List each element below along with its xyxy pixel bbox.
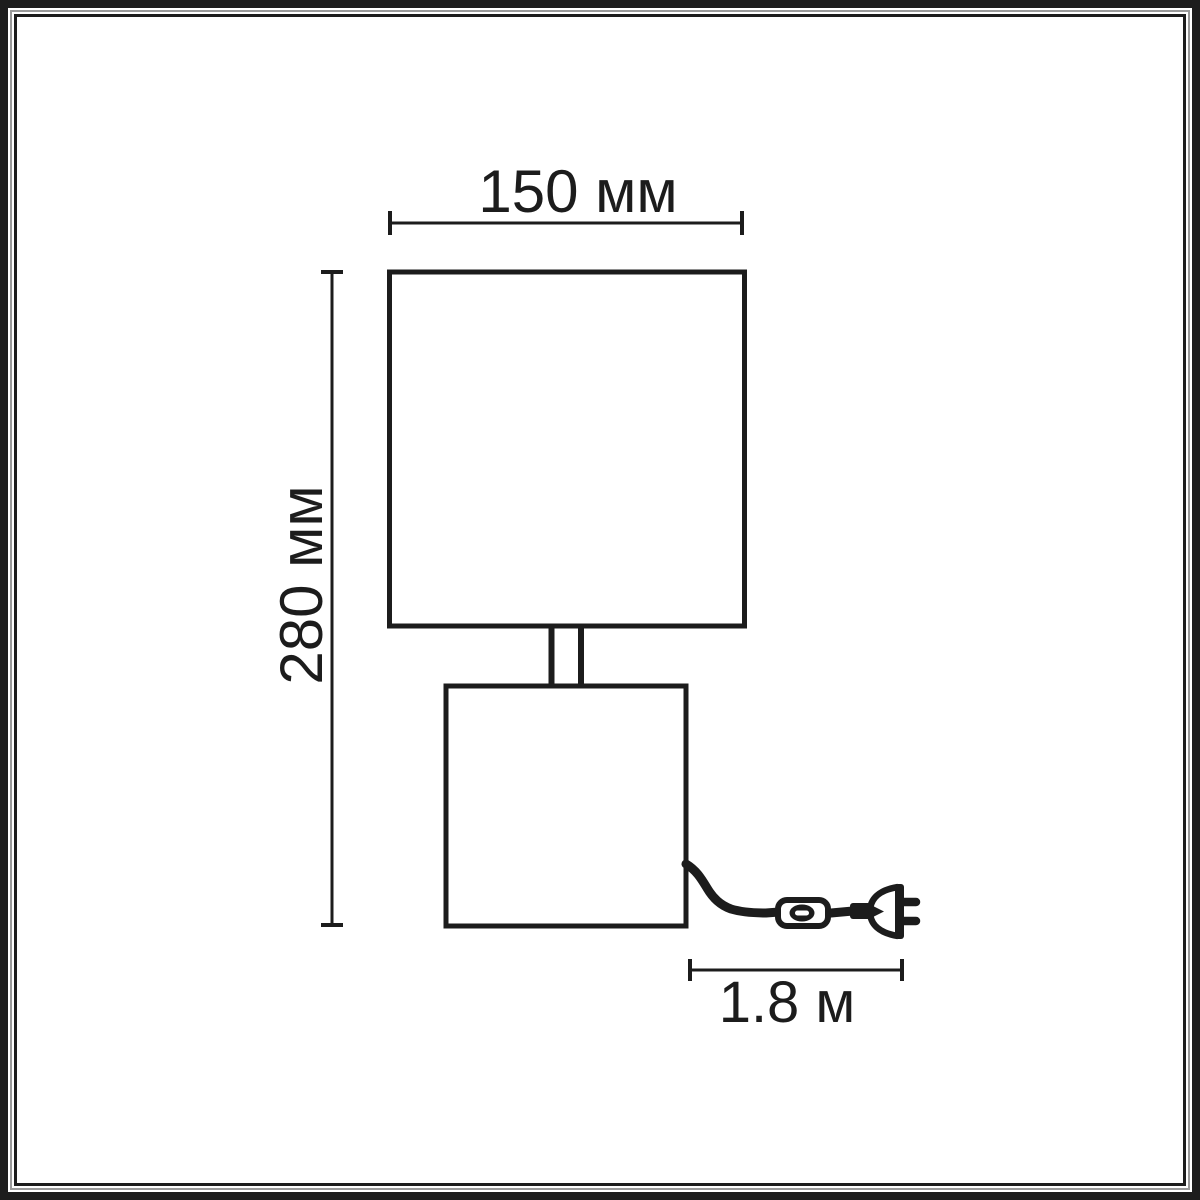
cord-dimension-label: 1.8 м — [719, 970, 856, 1035]
switch-button-slot — [795, 911, 809, 916]
lamp-shade — [390, 272, 745, 626]
lamp-base — [446, 686, 686, 926]
lamp-dimension-drawing: 280 мм 150 мм — [0, 0, 1200, 1200]
width-dimension-label: 150 мм — [478, 158, 677, 225]
power-cord-to-plug — [831, 911, 853, 913]
height-dimension-label: 280 мм — [268, 485, 335, 684]
lamp-figure — [390, 272, 745, 926]
power-cord-assembly — [686, 864, 916, 939]
height-dimension: 280 мм — [268, 272, 343, 925]
width-dimension: 150 мм — [390, 158, 742, 235]
diagram-canvas: 280 мм 150 мм — [0, 0, 1200, 1200]
plug-face — [895, 884, 904, 939]
cord-dimension: 1.8 м — [690, 959, 902, 1035]
power-cord — [686, 864, 779, 913]
